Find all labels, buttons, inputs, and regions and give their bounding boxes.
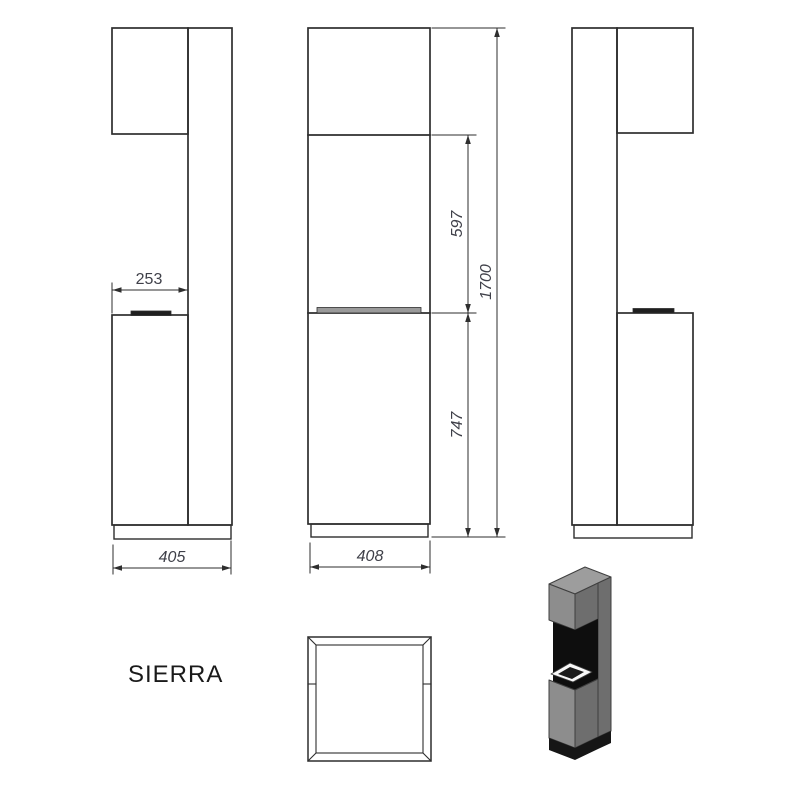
front-view-plinth: [311, 524, 428, 537]
dim-total-height-label: 1700: [478, 264, 495, 300]
arrow-597-top: [465, 135, 471, 144]
arrow-1700-bottom: [494, 528, 500, 537]
arrow-405-left: [113, 565, 122, 571]
left-view-burner-strip: [131, 311, 171, 316]
top-view-inner-frame: [316, 645, 423, 753]
front-view: [308, 28, 430, 537]
top-view-miter-top-left: [308, 637, 316, 645]
top-view: [308, 637, 431, 761]
dim-top-depth-label: 253: [136, 271, 163, 288]
arrow-253-left: [113, 287, 122, 293]
render-cabinet-side-face: [575, 679, 598, 748]
right-view-top-box: [617, 28, 693, 133]
arrow-747-bottom: [465, 528, 471, 537]
dim-side-depth-label: 405: [159, 549, 186, 566]
left-view-top-box: [112, 28, 188, 134]
top-view-miter-bottom-left: [308, 753, 316, 761]
top-view-miter-bottom-right: [423, 753, 431, 761]
front-view-burner-band: [317, 308, 421, 314]
dimension-arrowheads: [113, 28, 500, 571]
arrow-408-right: [421, 564, 430, 570]
isometric-render: [549, 567, 611, 760]
arrow-747-top: [465, 313, 471, 322]
right-view-back-column: [572, 28, 617, 525]
arrow-408-left: [310, 564, 319, 570]
side-view-right: [572, 28, 693, 538]
arrow-253-right: [179, 287, 188, 293]
render-cabinet-front-face: [549, 680, 575, 748]
drawing-svg: 253 405 408 597 747 1700 SIERRA: [0, 0, 800, 800]
side-view-left: [112, 28, 232, 539]
dim-firebox-height-label: 597: [449, 210, 466, 238]
left-view-back-column: [188, 28, 232, 525]
arrow-597-bottom: [465, 304, 471, 313]
right-view-lower-cabinet: [617, 313, 693, 525]
dimension-labels: 253 405 408 597 747 1700: [136, 210, 495, 566]
front-view-body: [308, 28, 430, 524]
product-name: SIERRA: [128, 661, 223, 688]
right-view-burner-strip: [633, 309, 674, 314]
top-view-outer-frame: [308, 637, 431, 761]
left-view-plinth: [114, 525, 231, 539]
right-view-plinth: [574, 525, 692, 538]
top-view-miter-top-right: [423, 637, 431, 645]
render-column-side-face: [598, 577, 611, 737]
left-view-lower-cabinet: [112, 315, 188, 525]
dim-cabinet-height-label: 747: [449, 411, 466, 439]
arrow-1700-top: [494, 28, 500, 37]
technical-drawing-sheet: 253 405 408 597 747 1700 SIERRA: [0, 0, 800, 800]
dim-front-width-label: 408: [357, 548, 384, 565]
arrow-405-right: [222, 565, 231, 571]
